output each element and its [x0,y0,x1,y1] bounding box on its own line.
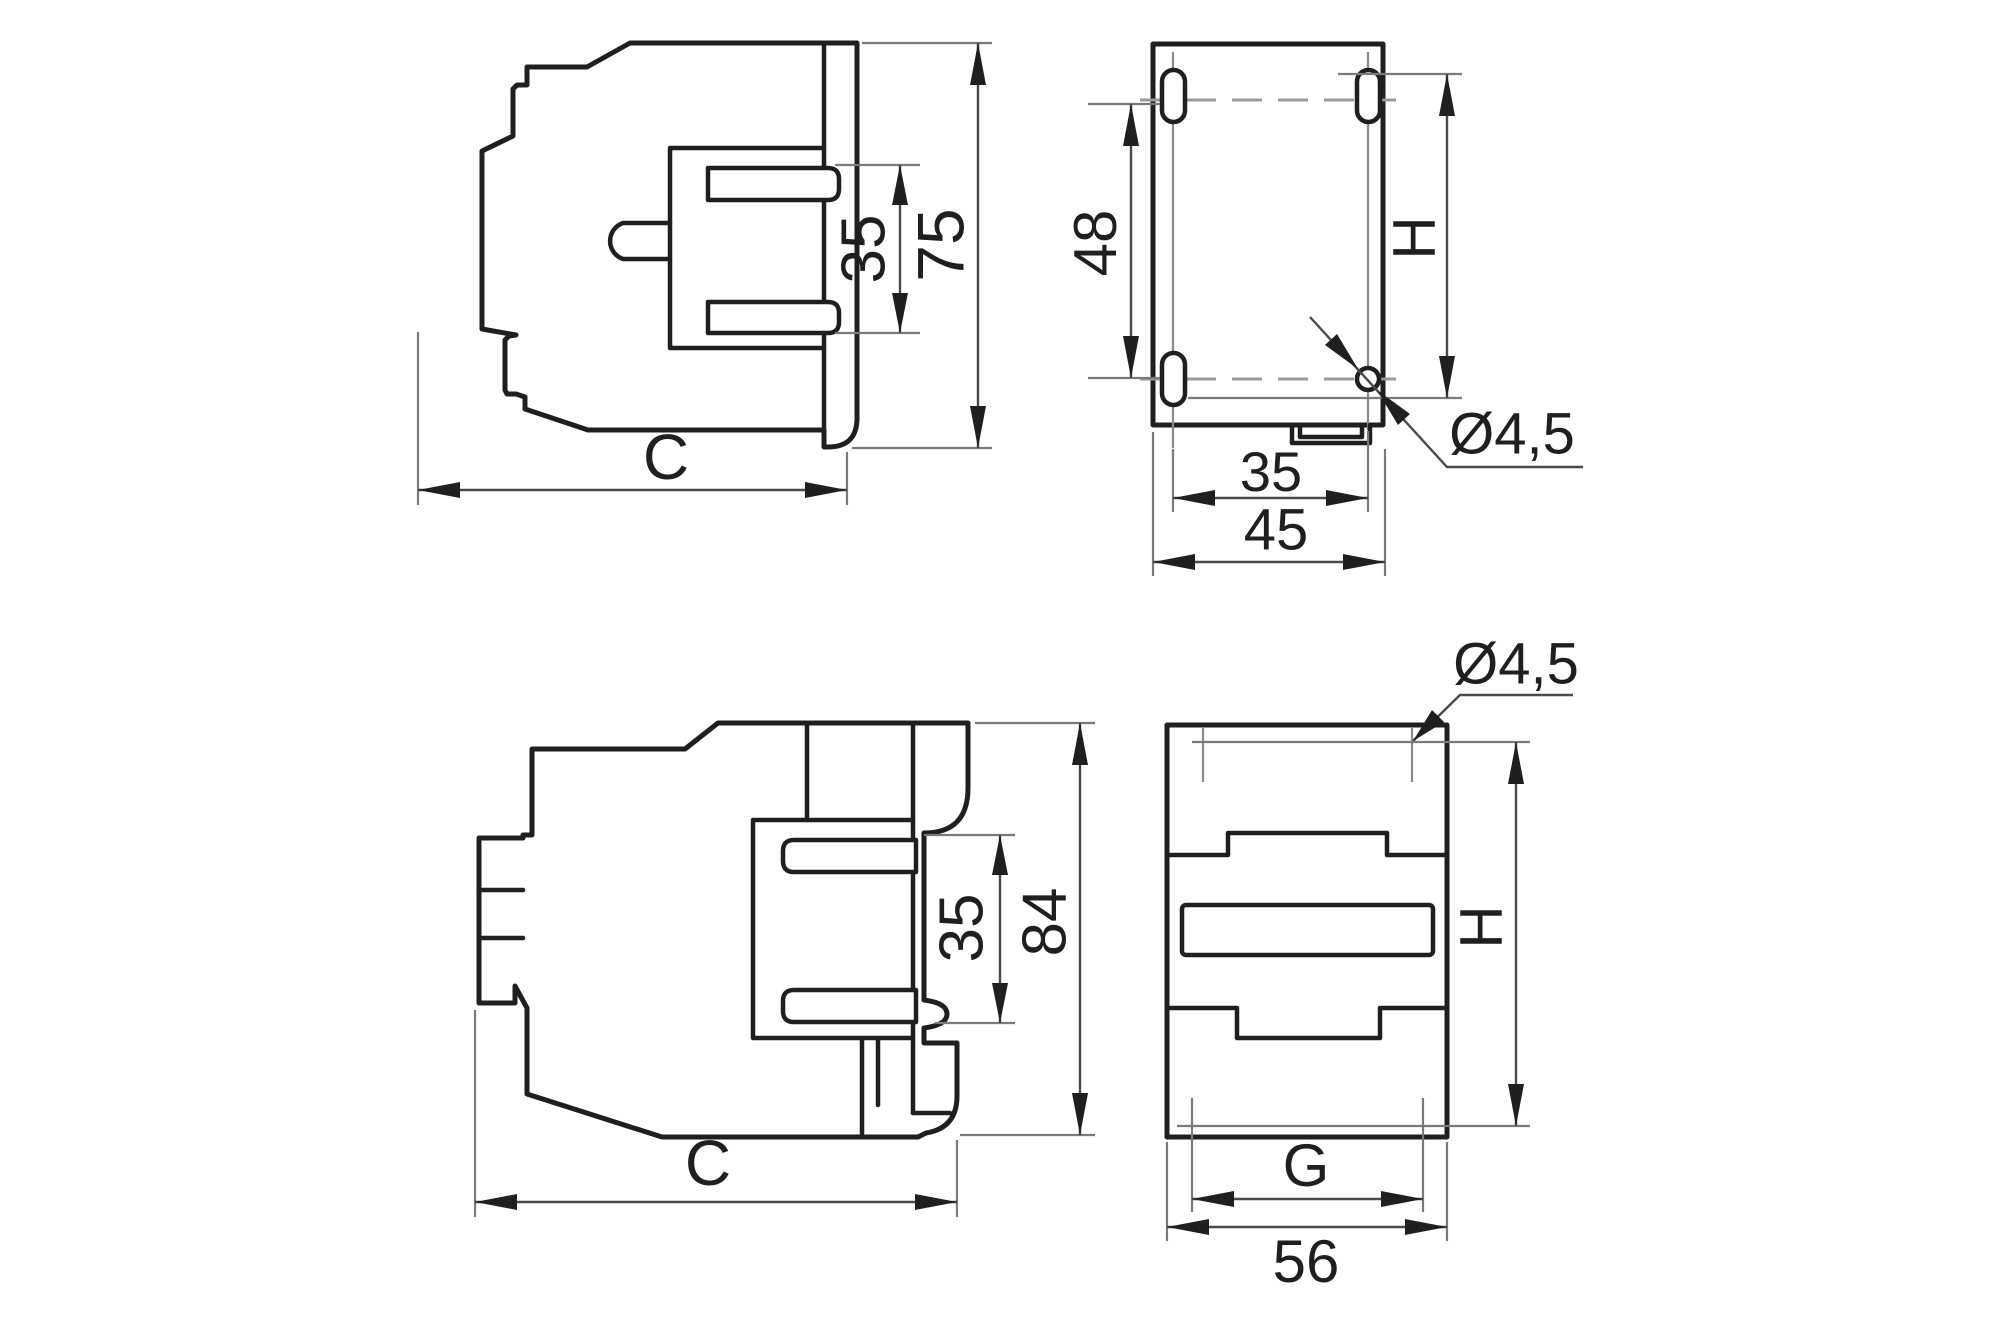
dim-label-h: H [1448,905,1515,948]
arrowhead [1381,1191,1423,1207]
dim-label-c: C [643,421,689,493]
arrowhead [1405,1219,1447,1235]
terminal-slot-lower [783,990,916,1022]
arrowhead [1123,336,1139,378]
arrowhead [1508,1084,1524,1126]
arrowhead [1343,554,1385,570]
arrowhead [1153,554,1195,570]
dim-label-c: C [685,1127,731,1199]
mounting-slot-bottom-left [1162,353,1185,405]
arrowhead [418,482,460,498]
mounting-footprint-view: 48 H 35 45 Ø4,5 [1062,44,1583,576]
dim-label-hole-diameter: Ø4,5 [1453,631,1579,696]
dim-label-35: 35 [829,215,898,284]
dim-label-56: 56 [1273,1228,1340,1295]
terminal-slot-lower [708,302,839,333]
arrowhead [1072,1093,1088,1135]
dim-label-35: 35 [927,894,996,963]
arrowhead [1167,1219,1209,1235]
dim-label-g: G [1283,1132,1330,1199]
arrowhead [1123,104,1139,146]
mounting-slot-top-left [1162,70,1185,122]
dim-label-35: 35 [1240,440,1302,503]
dim-label-84: 84 [1010,888,1079,957]
arrowhead [892,165,908,205]
technical-drawing-page: 35 75 C 48 H [0,0,2000,1333]
arrowhead [992,983,1008,1023]
arrowhead [1508,742,1524,784]
dim-label-h: H [1381,216,1448,259]
body-outline [479,723,968,1137]
arrowhead [992,835,1008,875]
arrowhead [1439,356,1455,398]
dim-label-75: 75 [903,208,977,281]
arrowhead [970,406,986,448]
front-face-outline [1167,725,1447,1137]
mounting-slot-top-right [1357,70,1380,122]
arrowhead [805,482,847,498]
arrowhead [1192,1191,1234,1207]
arrowhead [892,293,908,333]
terminal-slot-upper [783,840,916,872]
dim-label-45: 45 [1244,497,1309,562]
arrowhead [1439,74,1455,116]
arrowhead [915,1194,957,1210]
arrowhead [475,1194,517,1210]
side-view-top: 35 75 C [418,43,992,505]
bottom-tab [1292,425,1370,443]
dim-label-hole-diameter: Ø4,5 [1449,401,1575,466]
terminal-slot-upper [708,168,839,200]
arrowhead [1072,723,1088,765]
contactor-dimension-drawing: 35 75 C 48 H [0,0,2000,1333]
arrowhead [1326,490,1368,506]
arrowhead [970,43,986,85]
front-view: Ø4,5 H G 56 [1167,631,1579,1295]
arrowhead [1173,490,1215,506]
side-view-bottom: 35 84 C [475,723,1095,1217]
dim-label-48: 48 [1062,210,1129,277]
